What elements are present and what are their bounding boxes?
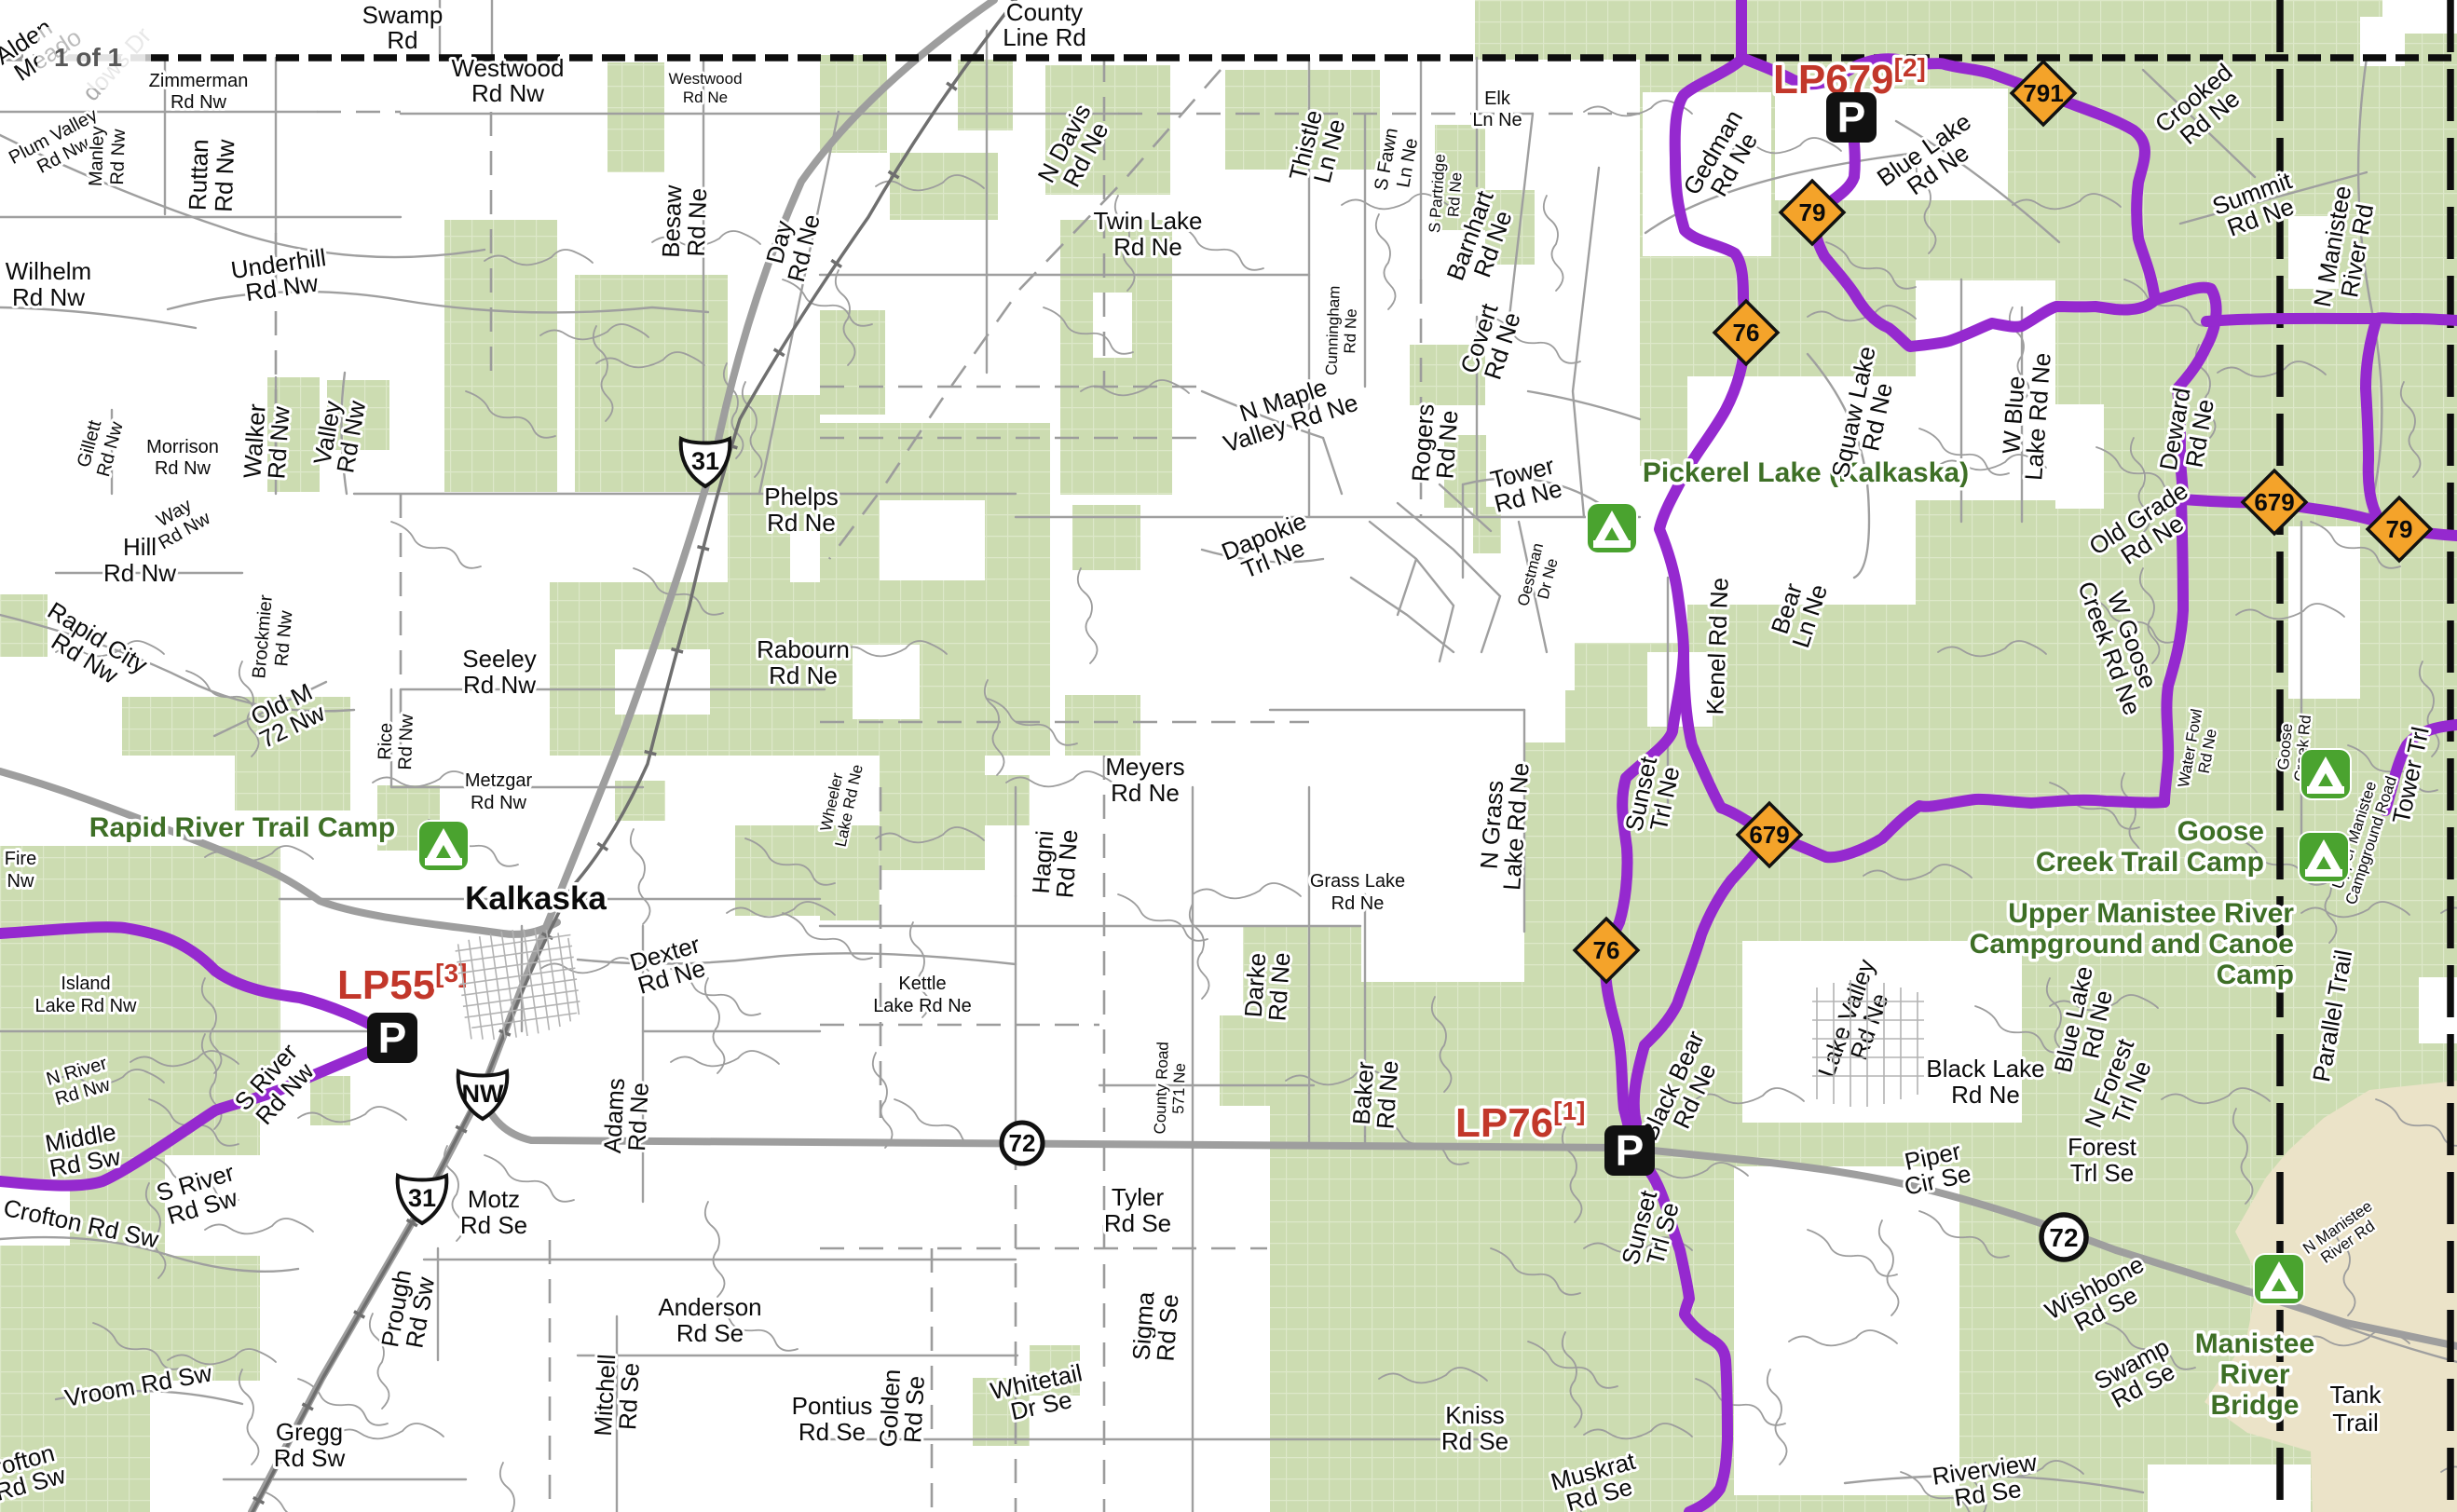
svg-text:BakerRd Ne: BakerRd Ne [1346, 1058, 1403, 1130]
svg-text:RogersRd Ne: RogersRd Ne [1406, 403, 1464, 485]
svg-text:PontiusRd Se: PontiusRd Se [792, 1392, 873, 1446]
svg-text:1 of 1: 1 of 1 [54, 43, 122, 72]
svg-text:KnissRd Se: KnissRd Se [1441, 1401, 1508, 1455]
svg-text:GoldenRd Se: GoldenRd Se [874, 1369, 930, 1450]
svg-text:AdamsRd Ne: AdamsRd Ne [598, 1077, 654, 1155]
svg-text:NW: NW [462, 1080, 504, 1108]
svg-text:791: 791 [2023, 79, 2063, 107]
svg-text:679: 679 [2254, 488, 2294, 516]
svg-text:ManleyRd Nw: ManleyRd Nw [86, 126, 130, 187]
svg-text:WalkerRd Nw: WalkerRd Nw [238, 402, 294, 481]
svg-text:PhelpsRd Ne: PhelpsRd Ne [764, 483, 839, 537]
svg-text:RabournRd Ne: RabournRd Ne [757, 635, 850, 689]
svg-text:Pickerel Lake (Kalkaska): Pickerel Lake (Kalkaska) [1643, 457, 1969, 488]
svg-text:RuttanRd Nw: RuttanRd Nw [184, 138, 240, 212]
svg-text:Kenel Rd Ne: Kenel Rd Ne [1700, 577, 1733, 715]
svg-text:MeyersRd Ne: MeyersRd Ne [1105, 753, 1184, 807]
svg-text:DarkeRd Ne: DarkeRd Ne [1238, 950, 1295, 1022]
svg-text:HagniRd Ne: HagniRd Ne [1026, 827, 1083, 899]
svg-text:Rapid River Trail Camp: Rapid River Trail Camp [89, 812, 395, 843]
svg-text:TankTrail: TankTrail [2330, 1381, 2382, 1437]
svg-text:GreggRd Sw: GreggRd Sw [274, 1418, 346, 1472]
svg-text:31: 31 [691, 447, 719, 475]
svg-text:ForestTrl Se: ForestTrl Se [2068, 1133, 2136, 1187]
svg-text:SigmaRd Se: SigmaRd Se [1126, 1290, 1183, 1363]
svg-text:Kalkaska: Kalkaska [465, 880, 607, 917]
svg-text:MorrisonRd Nw: MorrisonRd Nw [146, 437, 219, 479]
svg-text:MitchellRd Se: MitchellRd Se [589, 1354, 646, 1438]
svg-text:BesawRd Ne: BesawRd Ne [657, 184, 713, 259]
svg-text:679: 679 [1749, 821, 1789, 849]
svg-text:WilhelmRd Nw: WilhelmRd Nw [6, 257, 91, 311]
svg-text:76: 76 [1593, 936, 1620, 964]
svg-text:79: 79 [1799, 198, 1826, 226]
svg-text:72: 72 [2049, 1223, 2078, 1252]
svg-text:SeeleyRd Nw: SeeleyRd Nw [462, 645, 537, 699]
svg-text:79: 79 [2386, 515, 2413, 543]
svg-text:MotzRd Se: MotzRd Se [460, 1185, 527, 1239]
svg-text:CountyLine Rd: CountyLine Rd [1003, 0, 1086, 51]
svg-text:TylerRd Se: TylerRd Se [1104, 1183, 1171, 1237]
svg-text:72: 72 [1009, 1129, 1036, 1157]
svg-text:76: 76 [1733, 319, 1760, 347]
svg-text:31: 31 [408, 1184, 436, 1212]
